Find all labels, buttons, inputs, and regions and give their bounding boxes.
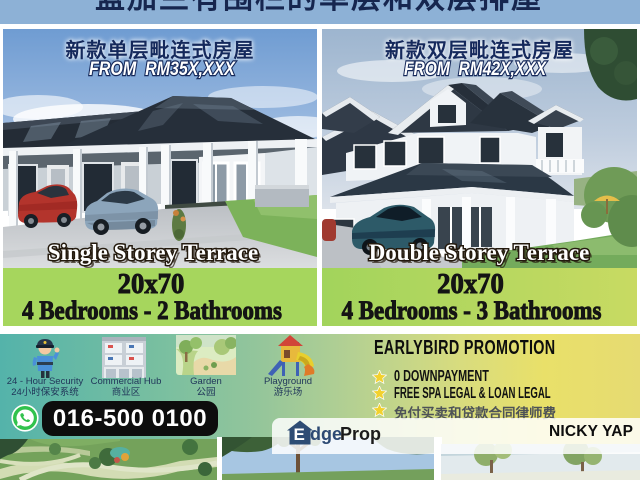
svg-text:FROM RM35X,XXX: FROM RM35X,XXX: [89, 59, 236, 80]
svg-text:Double Storey Terrace: Double Storey Terrace: [369, 240, 590, 265]
svg-text:Single Storey Terrace: Single Storey Terrace: [48, 240, 258, 265]
svg-text:FROM RM42X,XXX: FROM RM42X,XXX: [404, 59, 547, 80]
